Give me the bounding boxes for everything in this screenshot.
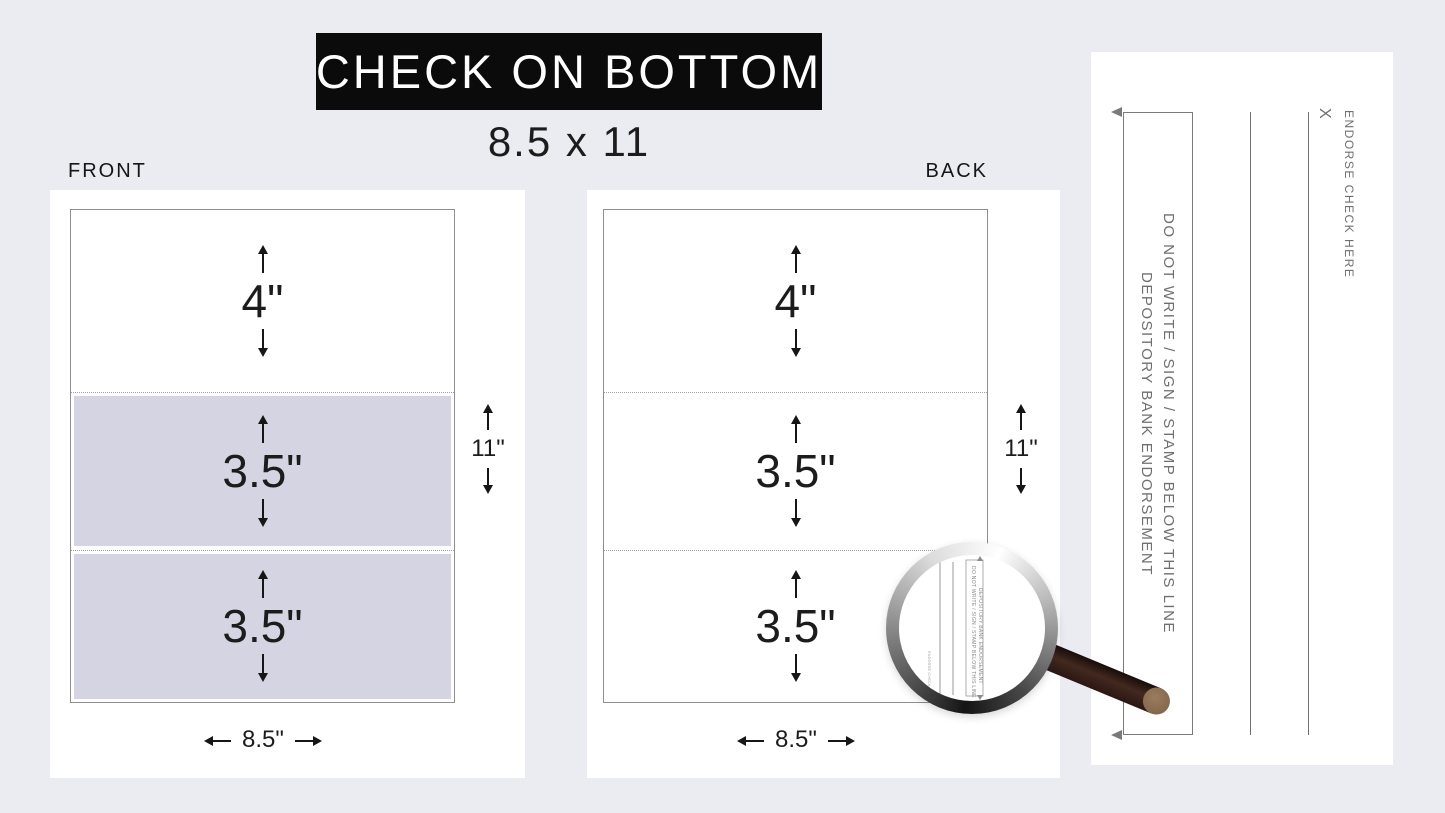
arrow-up-icon — [977, 556, 983, 561]
sign-x-mark: X — [1315, 108, 1333, 120]
arrow-down-icon — [977, 695, 983, 700]
infographic-canvas: CHECK ON BOTTOM 8.5 x 11 FRONT BACK 4" 3… — [0, 0, 1445, 813]
back-top-section: 4" — [604, 210, 987, 392]
arrow-up-icon — [790, 245, 802, 273]
front-top-section: 4" — [71, 210, 454, 392]
page-height-label: 11" — [471, 437, 504, 461]
front-page-width-dimension: 8.5" — [204, 729, 322, 753]
endorsement-warning-text: DO NOT WRITE / SIGN / STAMP BELOW THIS L… — [1157, 113, 1177, 734]
depository-bank-text: DEPOSITORY BANK ENDORSEMENT — [1135, 113, 1155, 734]
front-bottom-section: 3.5" — [71, 550, 454, 702]
magnified-endorse-here-text: ENDORSE CHECK HERE — [927, 651, 931, 700]
arrow-down-icon — [790, 654, 802, 682]
arrow-down-icon — [482, 468, 494, 494]
section-height-label: 3.5" — [755, 448, 835, 494]
arrow-up-icon — [257, 415, 269, 443]
back-panel-label: BACK — [788, 160, 988, 183]
magnifier-icon: DO NOT WRITE / SIGN / STAMP BELOW THIS L… — [886, 542, 1058, 714]
magnified-bank-text: DEPOSITORY BANK ENDORSEMENT — [977, 588, 983, 684]
back-page-height-dimension: 11" — [999, 404, 1043, 494]
front-panel-label: FRONT — [68, 160, 147, 183]
front-panel: 4" 3.5" 3.5" — [50, 190, 525, 778]
arrow-up-icon — [257, 245, 269, 273]
arrow-left-icon — [1111, 107, 1122, 117]
arrow-up-icon — [1015, 404, 1027, 430]
magnified-warning-text: DO NOT WRITE / SIGN / STAMP BELOW THIS L… — [970, 566, 976, 698]
arrow-down-icon — [1015, 468, 1027, 494]
back-page-width-dimension: 8.5" — [737, 729, 855, 753]
section-height-label: 4" — [242, 278, 284, 324]
section-height-label: 3.5" — [222, 448, 302, 494]
arrow-left-icon — [737, 735, 764, 747]
arrow-down-icon — [790, 499, 802, 527]
arrow-up-icon — [257, 570, 269, 598]
sheet-size-subtitle: 8.5 x 11 — [316, 118, 822, 166]
title-bar: CHECK ON BOTTOM — [316, 33, 822, 110]
section-height-label: 4" — [775, 278, 817, 324]
section-height-label: 3.5" — [222, 603, 302, 649]
magnified-endorsement-view: DO NOT WRITE / SIGN / STAMP BELOW THIS L… — [899, 555, 1045, 701]
page-width-label: 8.5" — [242, 728, 284, 752]
arrow-down-icon — [257, 499, 269, 527]
page-height-label: 11" — [1004, 437, 1037, 461]
signature-line — [1308, 112, 1309, 735]
front-middle-section: 3.5" — [71, 392, 454, 550]
endorse-check-here-label: ENDORSE CHECK HERE — [1342, 110, 1356, 278]
arrow-right-icon — [295, 735, 322, 747]
title-text: CHECK ON BOTTOM — [316, 44, 822, 99]
arrow-right-icon — [828, 735, 855, 747]
page-width-label: 8.5" — [775, 728, 817, 752]
arrow-down-icon — [257, 654, 269, 682]
arrow-up-icon — [482, 404, 494, 430]
arrow-down-icon — [790, 329, 802, 357]
arrow-left-icon — [204, 735, 231, 747]
arrow-left-icon — [1111, 730, 1122, 740]
section-height-label: 3.5" — [755, 603, 835, 649]
arrow-up-icon — [790, 570, 802, 598]
endorsement-box: DO NOT WRITE / SIGN / STAMP BELOW THIS L… — [1123, 112, 1193, 735]
front-sheet: 4" 3.5" 3.5" — [70, 209, 455, 703]
arrow-down-icon — [257, 329, 269, 357]
signature-line — [1250, 112, 1251, 735]
front-page-height-dimension: 11" — [466, 404, 510, 494]
back-middle-section: 3.5" — [604, 392, 987, 550]
arrow-up-icon — [790, 415, 802, 443]
endorsement-detail-panel: DO NOT WRITE / SIGN / STAMP BELOW THIS L… — [1091, 52, 1393, 765]
magnifier-lens: DO NOT WRITE / SIGN / STAMP BELOW THIS L… — [899, 555, 1045, 701]
